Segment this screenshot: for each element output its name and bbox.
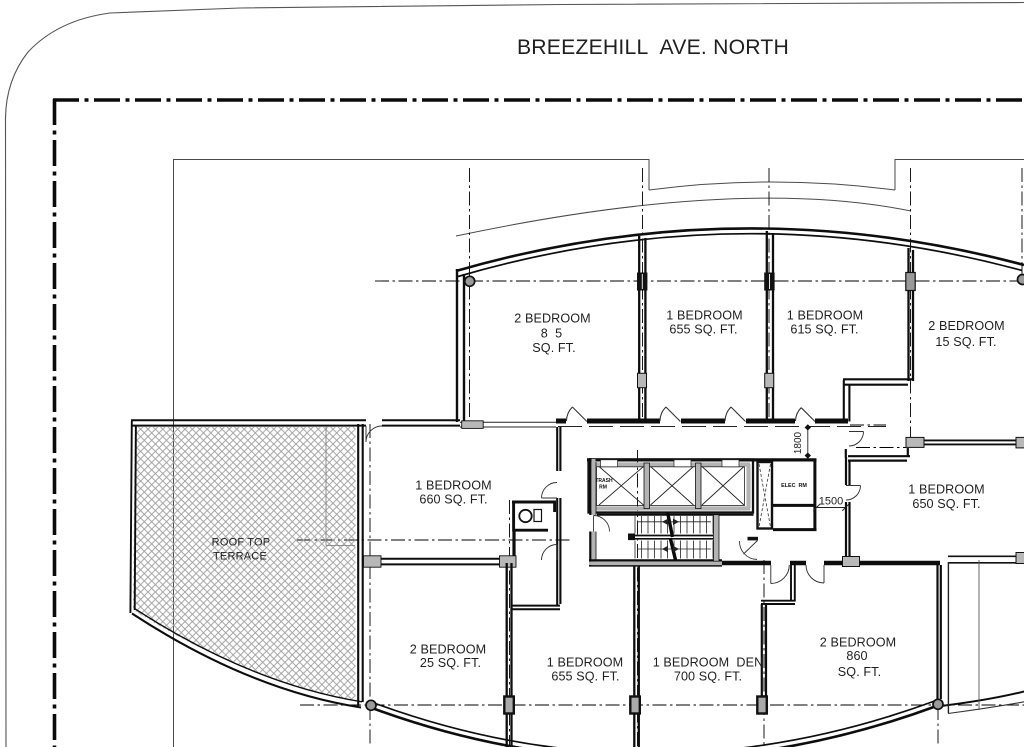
svg-text:BREEZEHILL AVE. NORTH: BREEZEHILL AVE. NORTH bbox=[517, 36, 789, 59]
svg-text:2 BEDROOM: 2 BEDROOM bbox=[410, 643, 486, 657]
svg-text:25 SQ. FT.: 25 SQ. FT. bbox=[420, 656, 481, 670]
svg-text:ROOF TOP: ROOF TOP bbox=[212, 537, 271, 549]
svg-text:1 BEDROOM: 1 BEDROOM bbox=[666, 309, 742, 323]
svg-text:SQ. FT.: SQ. FT. bbox=[838, 665, 881, 679]
svg-text:615 SQ. FT.: 615 SQ. FT. bbox=[790, 323, 858, 337]
svg-text:2 BEDROOM: 2 BEDROOM bbox=[928, 319, 1004, 333]
svg-text:SQ. FT.: SQ. FT. bbox=[532, 341, 575, 355]
svg-text:655 SQ. FT.: 655 SQ. FT. bbox=[669, 323, 737, 337]
svg-text:TERRACE: TERRACE bbox=[213, 551, 267, 563]
svg-text:860: 860 bbox=[846, 649, 867, 663]
svg-text:1500: 1500 bbox=[819, 496, 843, 508]
svg-text:RM: RM bbox=[599, 485, 607, 491]
svg-text:TRASH: TRASH bbox=[595, 478, 613, 484]
svg-text:1 BEDROOM DEN: 1 BEDROOM DEN bbox=[653, 656, 764, 670]
svg-text:1 BEDROOM: 1 BEDROOM bbox=[415, 479, 491, 493]
svg-text:1800: 1800 bbox=[793, 431, 804, 454]
svg-text:2 BEDROOM: 2 BEDROOM bbox=[820, 636, 896, 650]
svg-text:1 BEDROOM: 1 BEDROOM bbox=[908, 483, 984, 497]
svg-text:650 SQ. FT.: 650 SQ. FT. bbox=[912, 497, 980, 511]
svg-text:ELEC RM: ELEC RM bbox=[781, 483, 807, 489]
svg-text:2 BEDROOM: 2 BEDROOM bbox=[514, 312, 590, 326]
svg-text:8 5: 8 5 bbox=[541, 327, 562, 341]
svg-text:1 BEDROOM: 1 BEDROOM bbox=[547, 656, 623, 670]
svg-text:1 BEDROOM: 1 BEDROOM bbox=[787, 309, 863, 323]
svg-text:15 SQ. FT.: 15 SQ. FT. bbox=[935, 335, 996, 349]
svg-text:655 SQ. FT.: 655 SQ. FT. bbox=[551, 670, 619, 684]
svg-text:660 SQ. FT.: 660 SQ. FT. bbox=[419, 493, 487, 507]
svg-text:700 SQ. FT.: 700 SQ. FT. bbox=[674, 670, 742, 684]
